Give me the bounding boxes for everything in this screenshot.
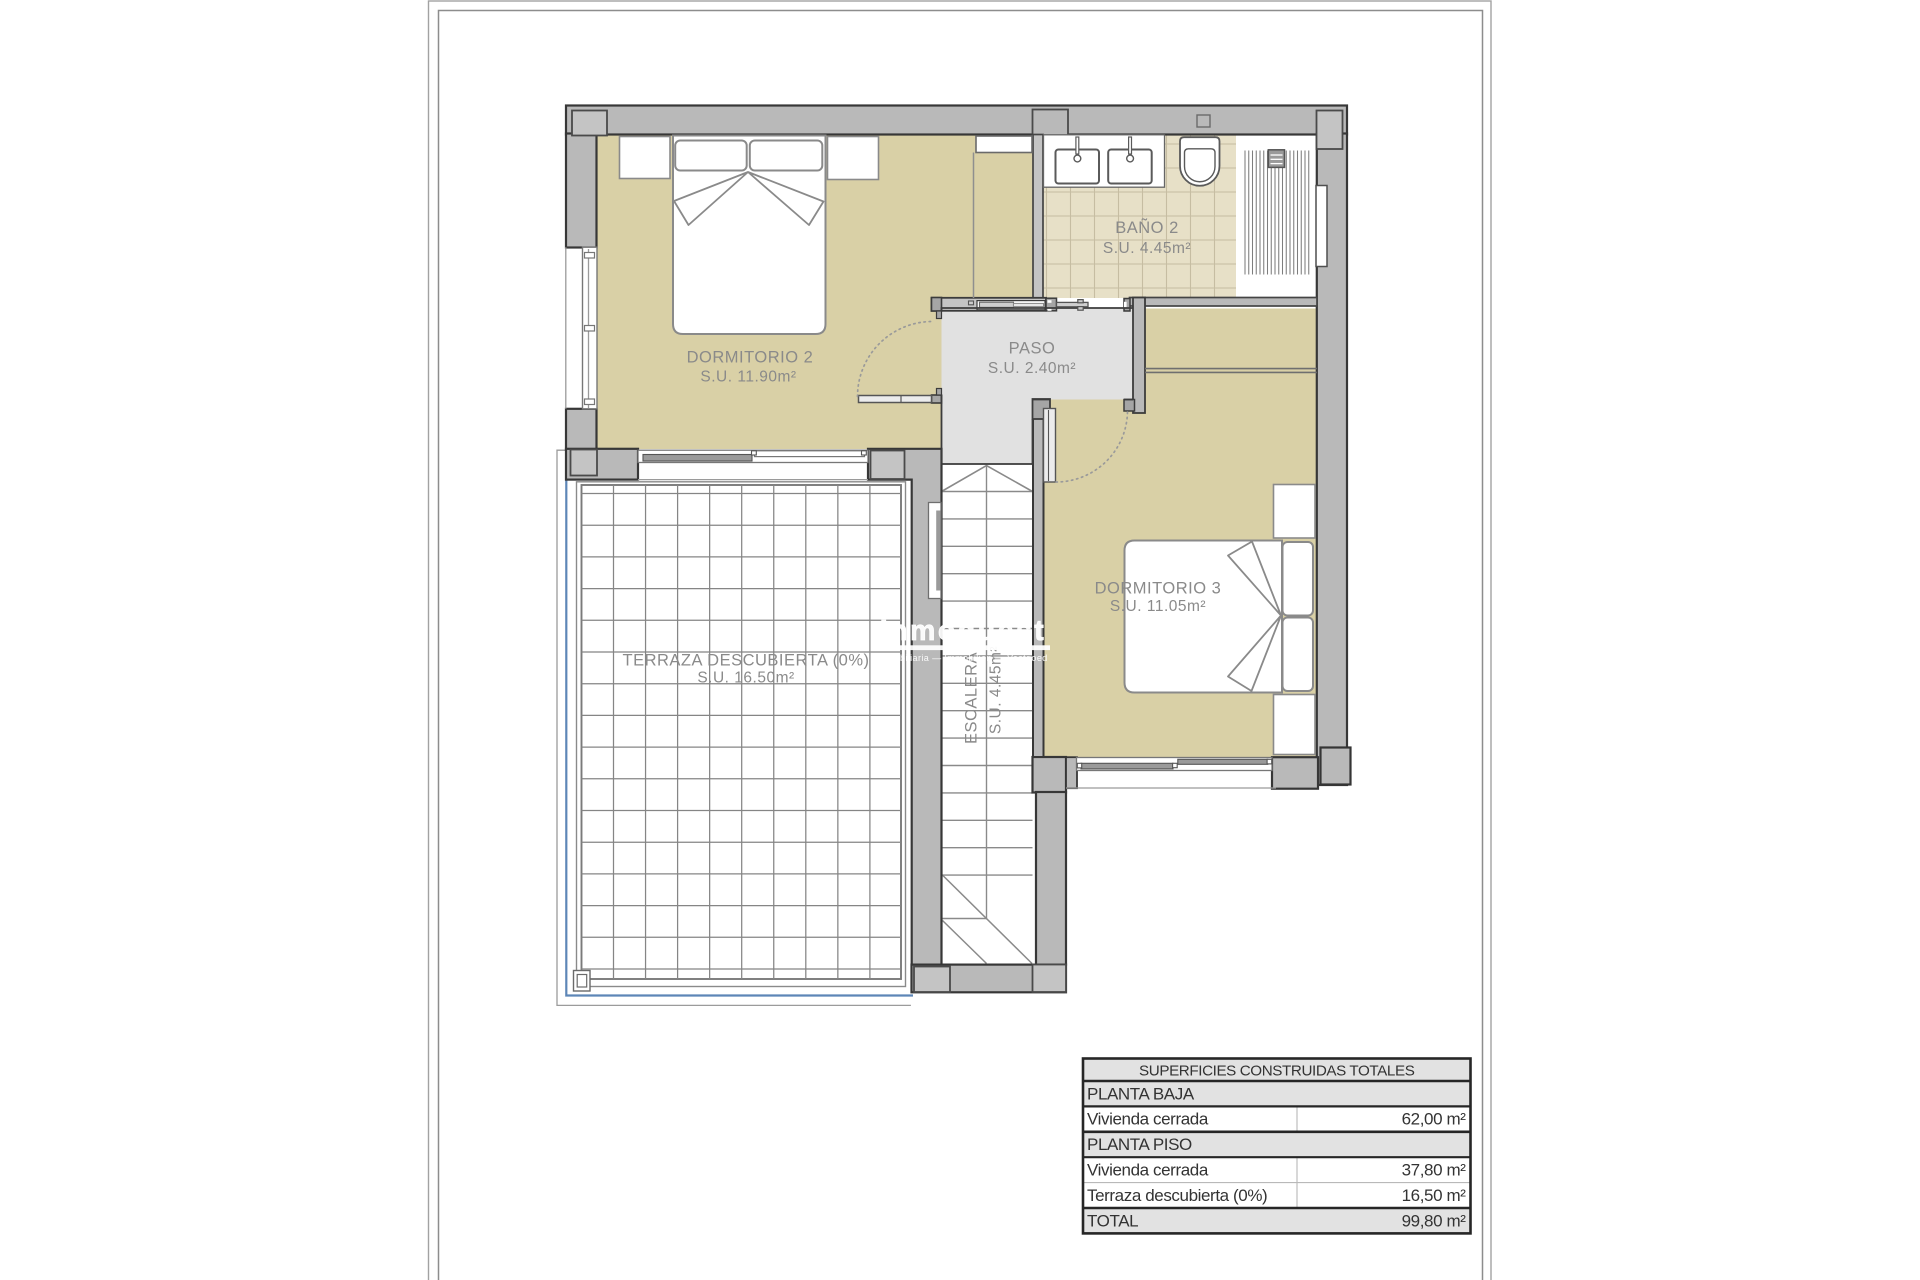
svg-text:Vivienda cerrada: Vivienda cerrada xyxy=(1087,1110,1209,1129)
svg-text:BAÑO 2: BAÑO 2 xyxy=(1115,217,1179,237)
svg-text:TERRAZA DESCUBIERTA (0%): TERRAZA DESCUBIERTA (0%) xyxy=(622,652,869,670)
svg-text:S.U. 11.90m²: S.U. 11.90m² xyxy=(700,369,796,386)
svg-text:16,50 m²: 16,50 m² xyxy=(1402,1186,1467,1205)
svg-text:Inmobiliaria — Immobilien — Va: Inmobiliaria — Immobilien — Vastgoed xyxy=(878,653,1047,663)
svg-text:37,80 m²: 37,80 m² xyxy=(1402,1161,1467,1180)
svg-text:99,80 m²: 99,80 m² xyxy=(1402,1211,1467,1230)
svg-text:SUPERFICIES CONSTRUIDAS TOTALE: SUPERFICIES CONSTRUIDAS TOTALES xyxy=(1139,1062,1415,1079)
svg-text:DORMITORIO 3: DORMITORIO 3 xyxy=(1095,580,1222,598)
svg-text:Vivienda cerrada: Vivienda cerrada xyxy=(1087,1161,1209,1180)
svg-text:PASO: PASO xyxy=(1009,340,1056,358)
svg-text:PLANTA BAJA: PLANTA BAJA xyxy=(1087,1084,1195,1103)
svg-text:PLANTA PISO: PLANTA PISO xyxy=(1087,1135,1192,1154)
svg-text:ESCALERA: ESCALERA xyxy=(963,652,981,744)
svg-text:62,00 m²: 62,00 m² xyxy=(1402,1110,1467,1129)
svg-text:TOTAL: TOTAL xyxy=(1087,1211,1138,1230)
svg-text:S.U. 2.40m²: S.U. 2.40m² xyxy=(988,360,1076,377)
svg-text:S.U. 11.05m²: S.U. 11.05m² xyxy=(1110,598,1206,615)
svg-text:S.U. 4.45m²: S.U. 4.45m² xyxy=(1103,240,1191,257)
svg-text:Inmoquest: Inmoquest xyxy=(880,615,1047,647)
svg-text:S.U. 16.50m²: S.U. 16.50m² xyxy=(697,670,794,687)
svg-text:DORMITORIO 2: DORMITORIO 2 xyxy=(687,349,814,367)
svg-text:Terraza descubierta (0%): Terraza descubierta (0%) xyxy=(1087,1186,1267,1205)
